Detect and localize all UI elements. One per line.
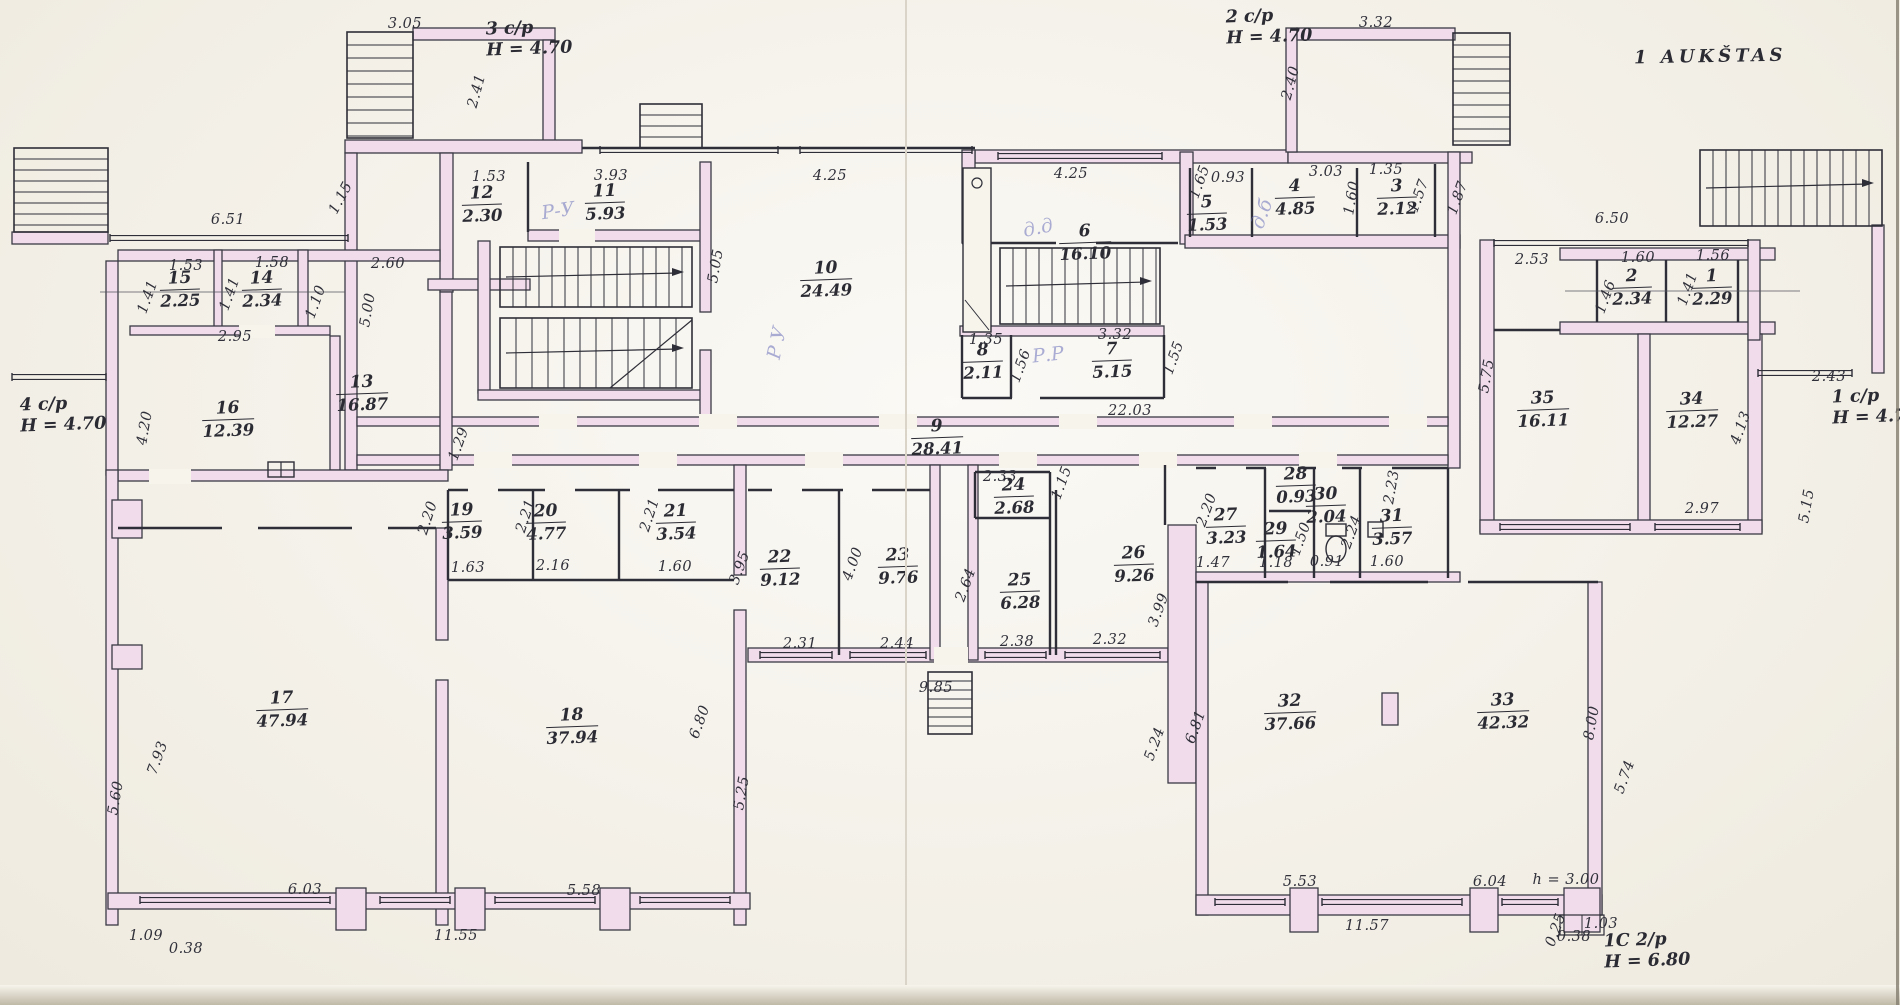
labels-layer: 1 AUKŠTAS 12.2922.3432.1244.8551.53616.1… [0,0,1900,1005]
dimension-label: 22.03 [1108,403,1152,419]
room-area: 2.04 [1306,505,1347,526]
dimension-label: 2.16 [536,558,570,574]
dimension-label: 5.58 [567,883,601,899]
staircase-name: 1C 2/p [1603,929,1690,953]
room-number: 13 [335,373,387,394]
room-number: 17 [255,689,307,710]
room-number: 12 [461,184,502,205]
room-number: 30 [1305,485,1346,506]
dimension-label: 4.13 [1728,409,1755,447]
staircase-label-1cp: 1 c/pH = 4.70 [1831,385,1900,430]
dimension-label: 2.33 [983,469,1017,485]
room-label-33: 3342.32 [1476,691,1529,732]
room-label-10: 1024.49 [799,259,852,300]
staircase-name: 1 c/p [1831,385,1900,409]
room-area: 37.66 [1264,712,1316,734]
room-number: 33 [1476,691,1528,712]
pencil-annotation: Р У [763,325,791,361]
dimension-label: 1.18 [1259,555,1293,571]
dimension-label: 1.35 [969,332,1003,348]
room-area: 3.59 [442,521,483,542]
room-label-12: 122.30 [461,184,503,225]
dimension-label: 1.60 [658,559,692,575]
room-label-21: 213.54 [655,502,697,543]
dimension-label: 1.60 [1621,250,1655,266]
dimension-label: 1.56 [1008,347,1035,385]
room-area: 12.39 [202,419,254,441]
dimension-label: 2.44 [880,636,914,652]
room-number: 6 [1058,222,1110,243]
scan-edge-bottom [0,985,1900,1005]
dimension-label: 1.15 [1049,464,1076,502]
room-label-34: 3412.27 [1665,390,1718,431]
room-label-30: 302.04 [1305,485,1347,526]
dimension-label: 4.00 [840,545,867,583]
room-area: 5.15 [1092,360,1133,381]
dimension-label: 2.53 [1515,252,1549,268]
room-label-13: 1316.87 [335,373,388,414]
dimension-label: 3.93 [594,168,628,184]
dimension-label: 5.25 [731,775,753,812]
room-area: 42.32 [1477,711,1529,733]
room-number: 11 [584,182,625,203]
dimension-label: 2.38 [1000,634,1034,650]
room-area: 2.34 [242,289,283,310]
scan-edge-right [1896,0,1899,1005]
dimension-label: 1.63 [451,560,485,576]
dimension-label: 1.10 [303,283,330,321]
dimension-label: 1.60 [1370,554,1404,570]
room-number: 22 [759,548,800,569]
dimension-label: 5.53 [1283,874,1317,890]
staircase-height: H = 4.70 [486,37,573,61]
staircase-label-4cp: 4 c/pH = 4.70 [19,393,106,438]
room-label-9: 928.41 [910,417,963,458]
room-label-19: 193.59 [441,501,483,542]
dimension-label: 11.57 [1345,918,1389,934]
room-number: 29 [1255,520,1296,541]
dimension-label: 0.38 [169,941,203,957]
room-number: 26 [1113,544,1154,565]
pencil-annotation: д.б [1247,196,1278,231]
room-area: 2.25 [160,289,201,310]
room-number: 31 [1371,507,1412,528]
dimension-label: 1.60 [1341,180,1363,217]
dimension-label: 4.20 [134,410,156,447]
room-area: 2.11 [963,361,1004,382]
room-area: 9.12 [760,568,801,589]
pencil-annotation: Р-У [540,198,576,224]
room-label-35: 3516.11 [1516,389,1569,430]
staircase-name: 3 c/p [485,17,572,41]
pencil-annotation: Р.Р [1031,342,1065,367]
room-area: 9.26 [1114,564,1155,585]
staircase-name: 2 c/p [1225,5,1312,29]
room-number: 10 [799,259,851,280]
dimension-label: 1.47 [1196,555,1230,571]
dimension-label: 2.64 [953,566,980,604]
drawing-title: 1 AUKŠTAS [1634,45,1787,69]
room-label-5: 51.53 [1186,193,1228,234]
dimension-label: 4.25 [1054,166,1088,182]
dimension-label: 11.55 [434,928,478,944]
staircase-label-2cp: 2 c/pH = 4.70 [1225,5,1312,50]
room-number: 9 [910,417,962,438]
room-number: 23 [877,546,918,567]
room-area: 16.10 [1059,242,1111,264]
dimension-label: 1.29 [446,425,473,463]
room-label-22: 229.12 [759,548,801,589]
room-label-7: 75.15 [1091,340,1133,381]
dimension-label: 1.41 [135,278,162,316]
dimension-label: 0.91 [1310,554,1344,570]
dimension-label: 3.05 [388,16,422,32]
room-number: 4 [1274,177,1315,198]
dimension-label: 2.43 [1812,369,1846,385]
dimension-label: 3.03 [1309,164,1343,180]
room-area: 28.41 [911,437,963,459]
dimension-label: 1.56 [1696,248,1730,264]
dimension-label: 2.41 [465,72,489,109]
room-number: 34 [1665,390,1717,411]
dimension-label: 5.75 [1476,358,1498,395]
dimension-label: 5.24 [1142,725,1169,763]
staircase-name: 4 c/p [19,393,106,417]
dimension-label: 4.25 [813,168,847,184]
dimension-label: h = 3.00 [1533,872,1600,888]
room-number: 32 [1263,692,1315,713]
staircase-label-3cp: 3 c/pH = 4.70 [485,17,572,62]
room-area: 9.76 [878,566,919,587]
room-label-15: 152.25 [159,269,201,310]
dimension-label: 6.80 [687,703,714,741]
room-label-6: 616.10 [1058,222,1111,263]
room-area: 1.53 [1187,213,1228,234]
room-label-16: 1612.39 [201,399,254,440]
dimension-label: 5.15 [1796,488,1818,525]
room-area: 47.94 [256,709,308,731]
room-number: 18 [545,706,597,727]
room-label-11: 115.93 [584,182,626,223]
staircase-height: H = 6.80 [1604,949,1691,973]
room-label-23: 239.76 [877,546,919,587]
dimension-label: 2.32 [1093,632,1127,648]
room-number: 35 [1516,389,1568,410]
dimension-label: 0.93 [1211,170,1245,186]
dimension-label: 1.09 [129,928,163,944]
floor-plan-page: 1 AUKŠTAS 12.2922.3432.1244.8551.53616.1… [0,0,1900,1005]
dimension-label: 9.85 [919,680,953,696]
dimension-label: 2.60 [371,256,405,272]
dimension-label: 1.35 [1369,162,1403,178]
dimension-label: 5.60 [105,780,127,817]
dimension-label: 2.40 [1279,64,1303,101]
dimension-label: 6.51 [211,212,245,228]
room-label-18: 1837.94 [545,706,598,747]
dimension-label: 1.58 [255,255,289,271]
room-number: 16 [201,399,253,420]
room-area: 24.49 [800,279,852,301]
room-area: 3.23 [1206,526,1247,547]
dimension-label: 6.50 [1595,211,1629,227]
room-area: 16.11 [1517,409,1569,431]
room-label-26: 269.26 [1113,544,1155,585]
dimension-label: 5.00 [357,292,379,329]
dimension-label: 1.55 [1161,339,1188,377]
room-area: 6.28 [1000,591,1041,612]
room-area: 12.27 [1666,410,1718,432]
room-number: 19 [441,501,482,522]
staircase-height: H = 4.70 [1832,405,1900,429]
dimension-label: 3.32 [1359,15,1393,31]
staircase-height: H = 4.70 [20,413,107,437]
dimension-label: 5.05 [705,248,727,285]
dimension-label: 2.31 [783,636,817,652]
pencil-annotation: д.д [1021,214,1055,242]
dimension-label: 2.23 [1381,469,1403,506]
room-area: 37.94 [546,726,598,748]
dimension-label: 1.87 [1445,179,1472,217]
room-number: 25 [999,571,1040,592]
room-area: 4.85 [1275,197,1316,218]
room-area: 3.57 [1372,527,1413,548]
room-area: 16.87 [336,393,388,415]
dimension-label: 2.97 [1685,501,1719,517]
staircase-height: H = 4.70 [1226,25,1313,49]
dimension-label: 1.41 [217,275,244,313]
room-area: 3.54 [656,522,697,543]
dimension-label: 6.04 [1473,874,1507,890]
room-area: 5.93 [585,202,626,223]
room-area: 2.30 [462,204,503,225]
room-area: 2.34 [1612,287,1653,308]
room-number: 14 [241,269,282,290]
dimension-label: 1.15 [326,179,356,217]
room-label-17: 1747.94 [255,689,308,730]
dimension-label: 2.20 [415,499,441,537]
dimension-label: 1.53 [472,169,506,185]
dimension-label: 6.03 [288,882,322,898]
room-label-14: 142.34 [241,269,283,310]
room-label-32: 3237.66 [1263,692,1316,733]
room-label-31: 313.57 [1371,507,1413,548]
room-label-25: 256.28 [999,571,1041,612]
dimension-label: 3.95 [727,549,754,587]
room-area: 4.77 [526,522,567,543]
dimension-label: 8.00 [1581,705,1603,742]
staircase-label-1C2p: 1C 2/pH = 6.80 [1603,929,1690,974]
dimension-label: 6.81 [1183,708,1210,746]
paper-fold-line [905,0,907,1005]
dimension-label: 5.74 [1612,758,1639,796]
dimension-label: 1.53 [169,258,203,274]
dimension-label: 3.32 [1098,327,1132,343]
room-area: 2.29 [1692,287,1733,308]
dimension-label: 3.99 [1146,591,1173,629]
room-area: 2.68 [994,496,1035,517]
room-number: 7 [1091,340,1132,361]
dimension-label: 2.95 [218,329,252,345]
dimension-label: 7.93 [145,739,172,777]
room-number: 28 [1275,465,1316,486]
room-label-4: 44.85 [1274,177,1316,218]
